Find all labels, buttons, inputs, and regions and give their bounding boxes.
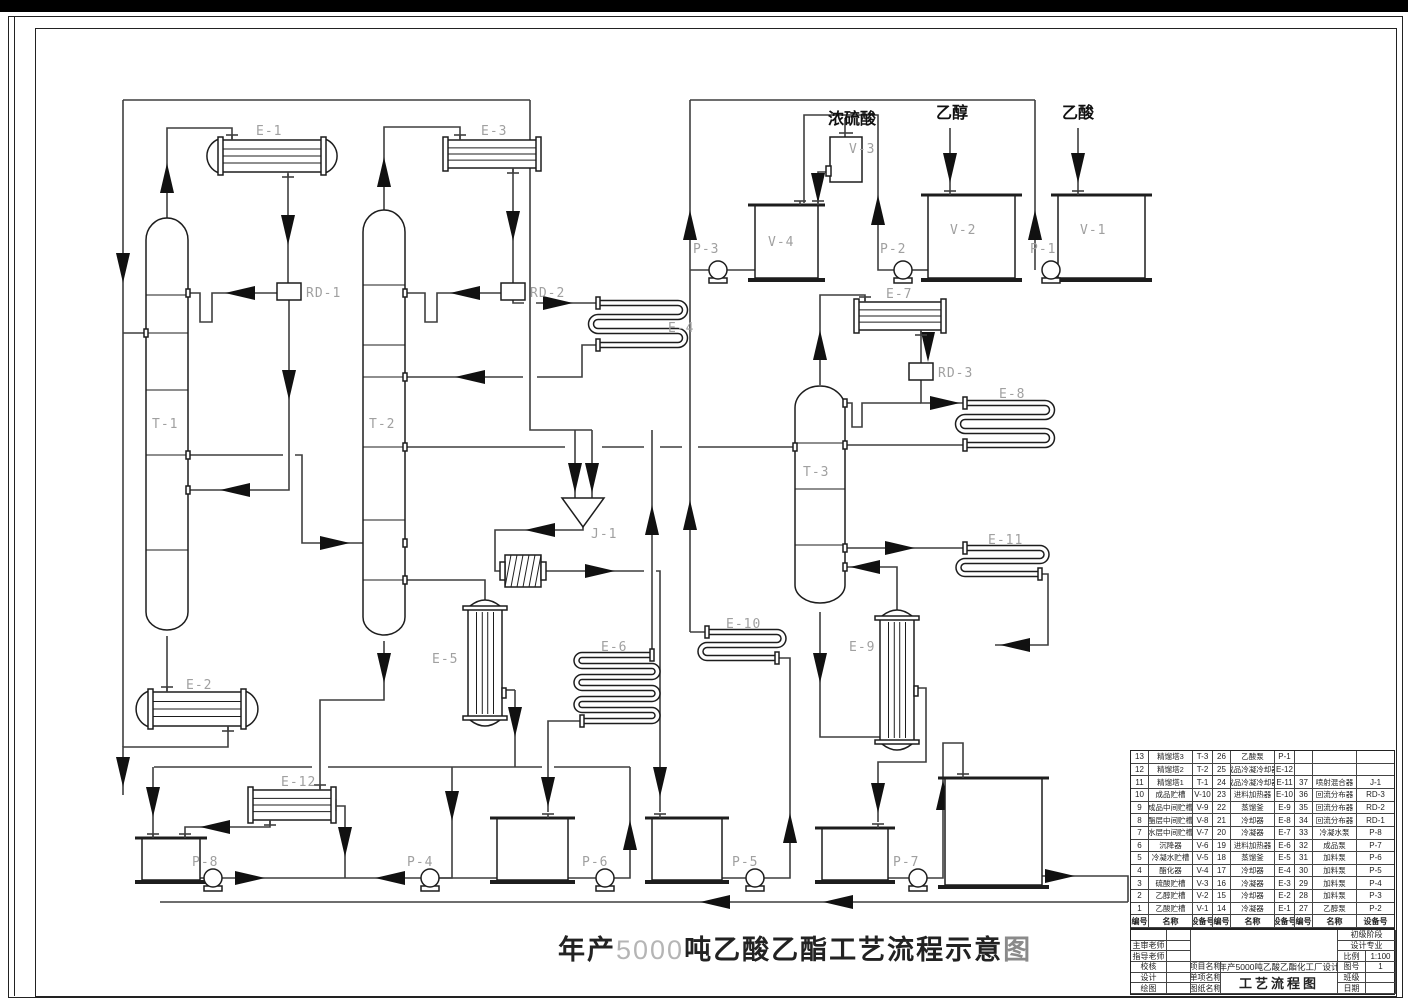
nozzle-tick xyxy=(843,399,847,407)
tb-empty xyxy=(1167,951,1191,962)
j1-label: J-1 xyxy=(591,527,617,542)
nozzle-tick xyxy=(186,486,190,494)
cap xyxy=(470,600,500,606)
eq-tag: P-8 xyxy=(1357,827,1394,840)
tank-base xyxy=(938,885,1049,889)
heat-exchanger-e12 xyxy=(248,785,336,825)
nozzle-tick xyxy=(793,443,797,451)
eq-no xyxy=(1295,751,1313,764)
flange xyxy=(854,299,859,333)
eq-no: 37 xyxy=(1295,776,1313,789)
p2-label: P-2 xyxy=(880,242,906,257)
eq-name: 成品中间贮槽 xyxy=(1149,802,1193,815)
flow-arrow xyxy=(1045,869,1075,883)
pipe xyxy=(405,580,485,606)
eq-name: 冷却器 xyxy=(1231,890,1275,903)
p7-label: P-7 xyxy=(893,855,919,870)
rd2-label: RD-2 xyxy=(530,286,565,301)
flange xyxy=(463,606,507,610)
flow-arrow xyxy=(338,827,352,857)
nozzle-tick xyxy=(843,441,847,449)
tank-base xyxy=(921,278,1022,282)
e12-label: E-12 xyxy=(281,775,316,790)
pipe xyxy=(845,567,897,618)
shell xyxy=(880,618,914,742)
flow-arrow xyxy=(823,895,853,909)
eq-no: 23 xyxy=(1213,789,1231,802)
eq-tag: P-5 xyxy=(1357,865,1394,878)
pump-p6 xyxy=(596,869,614,891)
inline-mixer xyxy=(500,555,546,587)
tank-body xyxy=(822,828,888,880)
eq-no: 11 xyxy=(1131,776,1149,789)
eq-tag: E-4 xyxy=(1275,865,1295,878)
flange xyxy=(536,137,541,171)
eq-name: 加料泵 xyxy=(1313,865,1357,878)
cap xyxy=(136,691,149,727)
p4-label: P-4 xyxy=(407,855,433,870)
flow-arrow xyxy=(200,820,230,834)
eq-name: 沉降器 xyxy=(1149,840,1193,853)
eq-name: 冷凝器 xyxy=(1231,877,1275,890)
eq-no: 15 xyxy=(1213,890,1231,903)
eq-tag: T-3 xyxy=(1193,751,1213,764)
flow-arrow xyxy=(700,895,730,909)
pump-casing xyxy=(894,261,912,279)
heat-exchanger-e2 xyxy=(136,687,258,731)
title-body: 吨乙酸乙酯工艺流程示意 xyxy=(684,935,1003,965)
eq-no: 16 xyxy=(1213,877,1231,890)
tank-body xyxy=(652,818,722,880)
coil-flange xyxy=(963,439,967,451)
nozzle-tick xyxy=(843,544,847,552)
eq-name: 硫酸贮槽 xyxy=(1149,877,1193,890)
eq-name: 加料泵 xyxy=(1313,890,1357,903)
flow-arrow xyxy=(683,210,697,240)
eq-tag: P-1 xyxy=(1275,751,1295,764)
coil-flange xyxy=(580,715,584,727)
flow-arrow xyxy=(281,215,295,245)
tb-figno-label: 图号 xyxy=(1338,962,1366,973)
nozzle-tick xyxy=(144,329,148,337)
flow-arrow xyxy=(455,370,485,384)
flow-arrow xyxy=(813,330,827,360)
t2-label: T-2 xyxy=(369,417,395,432)
flow-arrow xyxy=(525,523,555,537)
eq-tag: RD-2 xyxy=(1357,802,1394,815)
pump-casing xyxy=(596,869,614,887)
v3-label: V-3 xyxy=(849,142,875,157)
eq-name: 乙醇贮槽 xyxy=(1149,890,1193,903)
eq-header: 设备号 xyxy=(1275,915,1295,928)
title-block: 初级阶段 主审老师 设计专业 指导老师 比例 1:100 校核 项目名称 年产5… xyxy=(1130,929,1395,995)
flow-arrow xyxy=(116,253,130,283)
eq-tag: E-3 xyxy=(1275,877,1295,890)
eq-tag xyxy=(1357,751,1394,764)
eq-no: 19 xyxy=(1213,840,1231,853)
pipe xyxy=(439,767,452,878)
eq-name: 加料泵 xyxy=(1313,877,1357,890)
eq-no: 21 xyxy=(1213,814,1231,827)
eq-no: 4 xyxy=(1131,865,1149,878)
cap xyxy=(245,691,258,727)
reflux-divider-rd3 xyxy=(909,363,933,380)
pipe xyxy=(188,300,289,490)
eq-tag: RD-3 xyxy=(1357,789,1394,802)
eq-no: 3 xyxy=(1131,877,1149,890)
eq-tag: T-2 xyxy=(1193,764,1213,777)
eq-no: 1 xyxy=(1131,903,1149,916)
flow-arrow xyxy=(146,787,160,817)
flow-arrow xyxy=(645,505,659,535)
cap xyxy=(882,610,912,616)
pump-p7 xyxy=(909,869,927,891)
e10-label: E-10 xyxy=(726,617,761,632)
flow-arrow xyxy=(320,536,350,550)
tb-scale-value: 1:100 xyxy=(1366,951,1396,962)
eq-tag: P-2 xyxy=(1357,903,1394,916)
flow-arrow xyxy=(282,370,296,400)
title-capacity: 5000 xyxy=(616,935,684,965)
tb-designer-label: 设计 xyxy=(1131,973,1167,984)
eq-header: 名称 xyxy=(1149,915,1193,928)
tank-base xyxy=(1051,278,1152,282)
flange xyxy=(218,137,223,175)
flow-arrow xyxy=(871,195,885,225)
eq-no: 7 xyxy=(1131,827,1149,840)
eq-tag: P-3 xyxy=(1357,890,1394,903)
eq-tag: V-3 xyxy=(1193,877,1213,890)
eq-name: 蒸馏釜 xyxy=(1231,852,1275,865)
eq-no: 30 xyxy=(1295,865,1313,878)
eq-name: 水层中间贮槽 xyxy=(1149,827,1193,840)
eq-name: 冷凝水泵 xyxy=(1313,827,1357,840)
vessel-v10 xyxy=(938,774,1049,889)
pipe xyxy=(614,767,630,878)
flow-arrow xyxy=(568,463,582,493)
eq-tag: V-2 xyxy=(1193,890,1213,903)
eq-tag: V-9 xyxy=(1193,802,1213,815)
eq-no: 27 xyxy=(1295,903,1313,916)
e5-label: E-5 xyxy=(432,652,458,667)
eq-tag: V-1 xyxy=(1193,903,1213,916)
flow-arrow xyxy=(811,173,825,203)
shell xyxy=(468,608,502,718)
equipment-list-table: 13精馏塔3T-326乙酸泵P-112精馏塔2T-225成品冷凝冷却器E-121… xyxy=(1130,750,1395,929)
eq-header: 名称 xyxy=(1313,915,1357,928)
flow-arrow xyxy=(377,653,391,683)
eq-tag: V-4 xyxy=(1193,865,1213,878)
ethanol-label: 乙醇 xyxy=(936,103,968,122)
tb-empty xyxy=(1167,983,1191,994)
p3-label: P-3 xyxy=(693,242,719,257)
eq-name: 回流分布器 xyxy=(1313,802,1357,815)
eq-no: 20 xyxy=(1213,827,1231,840)
eq-name: 冷凝水贮槽 xyxy=(1149,852,1193,865)
flange xyxy=(321,137,326,175)
eq-tag: V-10 xyxy=(1193,789,1213,802)
pump-p3 xyxy=(709,261,727,283)
flow-arrow xyxy=(813,653,827,683)
eq-name: 成品贮槽 xyxy=(1149,789,1193,802)
eq-header: 名称 xyxy=(1231,915,1275,928)
nozzle-tick xyxy=(843,563,847,571)
coil-bore xyxy=(958,403,1052,445)
pump-casing xyxy=(204,869,222,887)
tb-empty xyxy=(1167,941,1191,952)
e7-label: E-7 xyxy=(886,287,912,302)
tb-empty xyxy=(1366,973,1396,984)
eq-name xyxy=(1313,751,1357,764)
nozzle-tick xyxy=(403,373,407,381)
diagram-title: 年产5000吨乙酸乙酯工艺流程示意图 xyxy=(558,928,958,967)
eq-name: 冷却器 xyxy=(1231,814,1275,827)
e2-label: E-2 xyxy=(186,678,212,693)
eq-name: 冷凝器 xyxy=(1231,827,1275,840)
tank-base xyxy=(748,278,825,282)
flow-arrow xyxy=(683,500,697,530)
pipe xyxy=(123,726,228,795)
e3-label: E-3 xyxy=(481,124,507,139)
vessel-v7 xyxy=(490,814,575,884)
eq-tag: P-7 xyxy=(1357,840,1394,853)
eq-tag: E-12 xyxy=(1275,764,1295,777)
coil-outline xyxy=(958,403,1052,445)
tb-empty xyxy=(1366,983,1396,994)
tb-date-label: 日期 xyxy=(1338,983,1366,994)
pipe xyxy=(295,455,363,543)
eq-tag: E-1 xyxy=(1275,903,1295,916)
eq-name: 冷凝器 xyxy=(1231,903,1275,916)
tb-advisor-label: 指导老师 xyxy=(1131,951,1167,962)
flow-arrow xyxy=(930,396,960,410)
p5-label: P-5 xyxy=(732,855,758,870)
eq-name: 精馏塔2 xyxy=(1149,764,1193,777)
p1-label: P-1 xyxy=(1030,242,1056,257)
eq-no: 34 xyxy=(1295,814,1313,827)
eq-name: 成品冷凝冷却器 xyxy=(1231,776,1275,789)
flow-arrow xyxy=(1000,638,1030,652)
flow-arrow xyxy=(235,871,265,885)
eq-name: 精馏塔1 xyxy=(1149,776,1193,789)
ejector-j1 xyxy=(562,498,604,527)
eq-header: 设备号 xyxy=(1357,915,1394,928)
nozzle-tick xyxy=(186,289,190,297)
t3-label: T-3 xyxy=(803,465,829,480)
eq-name: 乙酸贮槽 xyxy=(1149,903,1193,916)
flow-arrow xyxy=(585,463,599,493)
heat-exchanger-e5 xyxy=(463,600,507,726)
tank-body xyxy=(945,778,1042,885)
tb-sheet-label: 图纸名称 xyxy=(1191,983,1221,994)
pipe xyxy=(188,293,277,322)
nozzle-flange xyxy=(914,686,918,696)
heat-exchanger-e7 xyxy=(854,297,946,335)
eq-name: 乙酸泵 xyxy=(1231,751,1275,764)
eq-no: 5 xyxy=(1131,852,1149,865)
pipe xyxy=(405,293,501,322)
tb-item-label: 单项名称 xyxy=(1191,973,1221,984)
reflux-divider-rd2 xyxy=(501,283,525,300)
flow-arrow xyxy=(450,286,480,300)
tb-scale-label: 比例 xyxy=(1338,951,1366,962)
coil-bore xyxy=(577,655,658,721)
cap xyxy=(470,720,500,726)
nozzle-tick xyxy=(403,443,407,451)
eq-tag: E-2 xyxy=(1275,890,1295,903)
e4-label: E-4 xyxy=(668,321,694,336)
reflux-divider-rd1 xyxy=(277,283,301,300)
eq-name: 加料泵 xyxy=(1313,852,1357,865)
pipe xyxy=(995,574,1048,645)
pipe xyxy=(845,403,921,427)
tb-sheet-name: 工艺流程图 xyxy=(1221,973,1338,994)
cooling-coil-e8 xyxy=(958,397,1052,451)
nozzle-tick xyxy=(403,576,407,584)
coil-flange xyxy=(650,649,654,661)
flange xyxy=(443,137,448,171)
p6-label: P-6 xyxy=(582,855,608,870)
vessel-v3 xyxy=(826,133,862,182)
eq-no: 10 xyxy=(1131,789,1149,802)
heat-exchanger-e9 xyxy=(875,610,919,750)
pump-p8 xyxy=(204,869,222,891)
eq-name: 回流分布器 xyxy=(1313,789,1357,802)
eq-no: 28 xyxy=(1295,890,1313,903)
eq-tag: V-5 xyxy=(1193,852,1213,865)
coil-bore xyxy=(701,632,784,658)
cooling-coil-e6 xyxy=(577,649,658,727)
flow-arrow xyxy=(445,791,459,821)
flow-arrow xyxy=(871,783,885,813)
pump-p1 xyxy=(1042,261,1060,283)
tb-project-label: 项目名称 xyxy=(1191,962,1221,973)
flow-arrow xyxy=(921,332,935,362)
eq-header: 编号 xyxy=(1213,915,1231,928)
flange xyxy=(875,616,919,620)
sulfuric_acid-label: 浓硫酸 xyxy=(828,109,877,128)
eq-no: 36 xyxy=(1295,789,1313,802)
eq-tag: E-7 xyxy=(1275,827,1295,840)
tb-empty xyxy=(1167,930,1191,941)
flow-arrow xyxy=(541,777,555,807)
column-body xyxy=(795,386,845,603)
funnel xyxy=(562,498,604,527)
flow-arrow xyxy=(653,767,667,797)
eq-tag: E-5 xyxy=(1275,852,1295,865)
eq-no: 35 xyxy=(1295,802,1313,815)
flange xyxy=(241,689,246,729)
nozzle-tick xyxy=(186,451,190,459)
eq-name: 进料加热器 xyxy=(1231,840,1275,853)
eq-tag: J-1 xyxy=(1357,776,1394,789)
coil-bore xyxy=(959,548,1047,574)
pump-p4 xyxy=(421,869,439,891)
eq-tag: E-8 xyxy=(1275,814,1295,827)
eq-no: 2 xyxy=(1131,890,1149,903)
flow-arrow xyxy=(783,813,797,843)
cap xyxy=(882,744,912,750)
coil-flange xyxy=(705,626,709,638)
eq-tag: E-6 xyxy=(1275,840,1295,853)
column-t3 xyxy=(795,386,845,603)
eq-no: 29 xyxy=(1295,877,1313,890)
v2-label: V-2 xyxy=(950,223,976,238)
e1-label: E-1 xyxy=(256,124,282,139)
eq-no xyxy=(1295,764,1313,777)
eq-name: 蒸馏釜 xyxy=(1231,802,1275,815)
rd3-label: RD-3 xyxy=(938,366,973,381)
tb-project-value: 年产5000吨乙酸乙酯化工厂设计 xyxy=(1221,962,1338,973)
flow-arrow xyxy=(116,757,130,787)
eq-tag: V-8 xyxy=(1193,814,1213,827)
eq-no: 17 xyxy=(1213,865,1231,878)
flow-arrow xyxy=(220,483,250,497)
flow-arrow xyxy=(160,163,174,193)
acetic_acid-label: 乙酸 xyxy=(1062,103,1095,122)
eq-no: 12 xyxy=(1131,764,1149,777)
flow-arrow xyxy=(225,286,255,300)
eq-no: 22 xyxy=(1213,802,1231,815)
eq-name: 成品冷凝冷却器 xyxy=(1231,764,1275,777)
p8-label: P-8 xyxy=(192,855,218,870)
eq-no: 26 xyxy=(1213,751,1231,764)
flow-arrow xyxy=(377,157,391,187)
e6-label: E-6 xyxy=(601,640,627,655)
tank-base xyxy=(490,880,575,884)
title-prefix: 年产 xyxy=(558,935,616,965)
tb-major-label: 设计专业 xyxy=(1338,941,1396,952)
eq-name: 酯层中间贮槽 xyxy=(1149,814,1193,827)
rd1-label: RD-1 xyxy=(306,286,341,301)
eq-name: 喷射混合器 xyxy=(1313,776,1357,789)
tb-reviewer-label: 主审老师 xyxy=(1131,941,1167,952)
flange xyxy=(500,562,505,580)
coil-flange xyxy=(596,297,600,309)
nozzle-tick xyxy=(403,289,407,297)
tb-empty xyxy=(1131,930,1167,941)
coil-flange xyxy=(1038,568,1042,580)
tb-empty xyxy=(1167,962,1191,973)
eq-tag: E-9 xyxy=(1275,802,1295,815)
eq-name: 成品泵 xyxy=(1313,840,1357,853)
tb-drafter-label: 绘图 xyxy=(1131,983,1167,994)
eq-no: 14 xyxy=(1213,903,1231,916)
vessel-v9 xyxy=(815,824,895,884)
flow-arrow xyxy=(506,211,520,241)
eq-no: 13 xyxy=(1131,751,1149,764)
vessel-v8 xyxy=(645,814,729,884)
flow-arrow xyxy=(850,560,880,574)
coil-flange xyxy=(963,397,967,409)
pump-casing xyxy=(909,869,927,887)
eq-no: 18 xyxy=(1213,852,1231,865)
coil-flange xyxy=(963,542,967,554)
pipe xyxy=(537,345,598,377)
pump-p5 xyxy=(746,869,764,891)
tb-checker-label: 校核 xyxy=(1131,962,1167,973)
eq-name: 乙醇泵 xyxy=(1313,903,1357,916)
eq-tag: RD-1 xyxy=(1357,814,1394,827)
flow-arrow xyxy=(508,707,522,737)
t1-label: T-1 xyxy=(152,417,178,432)
pump-casing xyxy=(709,261,727,279)
pipe xyxy=(764,658,790,878)
flow-arrow xyxy=(375,871,405,885)
tb-blank-box xyxy=(1191,930,1338,962)
flange xyxy=(463,716,507,720)
flow-arrow xyxy=(885,541,915,555)
